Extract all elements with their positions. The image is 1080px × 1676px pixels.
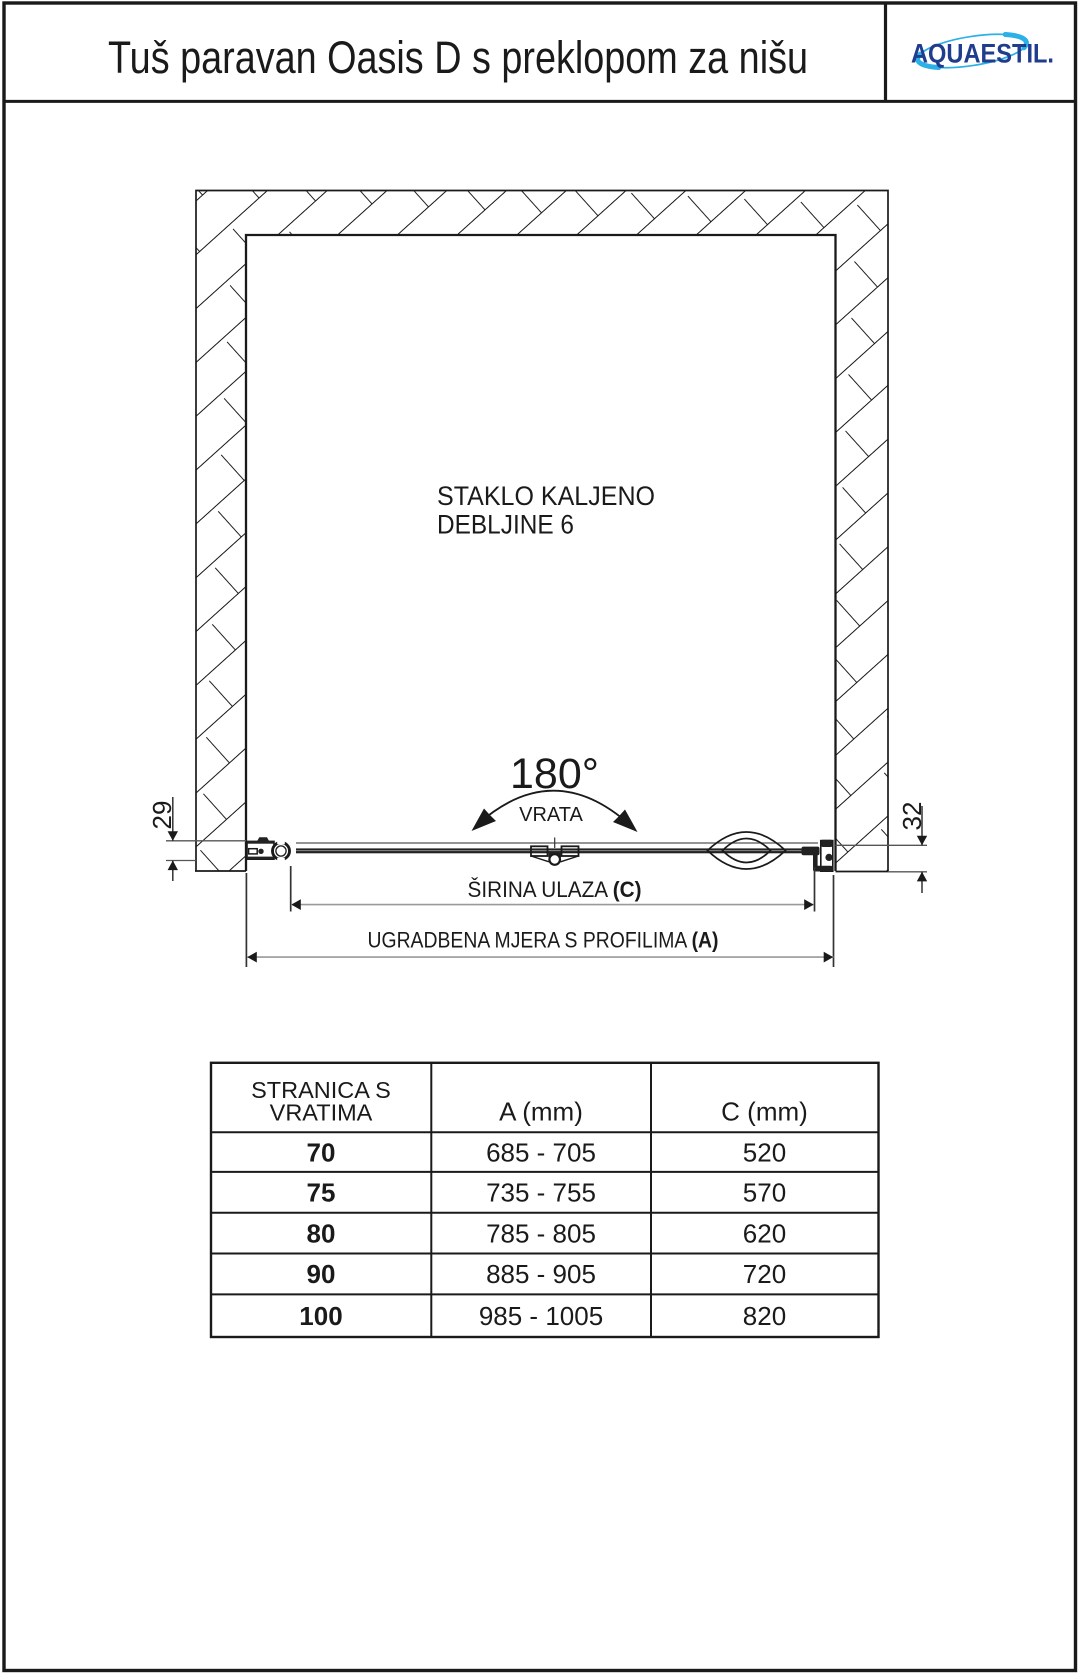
svg-text:80: 80 bbox=[307, 1218, 336, 1248]
svg-text:A (mm): A (mm) bbox=[499, 1096, 583, 1126]
svg-text:90: 90 bbox=[307, 1259, 336, 1289]
svg-text:520: 520 bbox=[743, 1137, 786, 1167]
svg-text:985 - 1005: 985 - 1005 bbox=[479, 1301, 603, 1331]
svg-text:70: 70 bbox=[307, 1137, 336, 1167]
svg-text:720: 720 bbox=[743, 1259, 786, 1289]
svg-text:AQUAESTIL.: AQUAESTIL. bbox=[911, 39, 1054, 69]
svg-text:Tuš paravan Oasis D s preklopo: Tuš paravan Oasis D s preklopom za nišu bbox=[108, 32, 808, 83]
svg-text:C (mm): C (mm) bbox=[721, 1096, 808, 1126]
svg-text:VRATA: VRATA bbox=[519, 804, 583, 826]
svg-text:ŠIRINA ULAZA (C): ŠIRINA ULAZA (C) bbox=[468, 877, 642, 902]
svg-text:735 - 755: 735 - 755 bbox=[486, 1178, 596, 1208]
svg-text:STAKLO KALJENO: STAKLO KALJENO bbox=[437, 481, 655, 511]
svg-text:620: 620 bbox=[743, 1218, 786, 1248]
svg-text:DEBLJINE 6: DEBLJINE 6 bbox=[437, 510, 574, 540]
svg-text:685 - 705: 685 - 705 bbox=[486, 1137, 596, 1167]
svg-text:885 - 905: 885 - 905 bbox=[486, 1259, 596, 1289]
svg-text:VRATIMA: VRATIMA bbox=[270, 1099, 373, 1125]
svg-text:29: 29 bbox=[147, 801, 177, 830]
svg-text:100: 100 bbox=[299, 1301, 342, 1331]
svg-text:75: 75 bbox=[307, 1178, 336, 1208]
svg-text:820: 820 bbox=[743, 1301, 786, 1331]
svg-text:785 - 805: 785 - 805 bbox=[486, 1218, 596, 1248]
svg-text:570: 570 bbox=[743, 1178, 786, 1208]
svg-text:180°: 180° bbox=[510, 750, 599, 798]
svg-text:32: 32 bbox=[897, 802, 927, 831]
svg-text:UGRADBENA MJERA S PROFILIMA (: UGRADBENA MJERA S PROFILIMA (A) bbox=[368, 928, 719, 953]
